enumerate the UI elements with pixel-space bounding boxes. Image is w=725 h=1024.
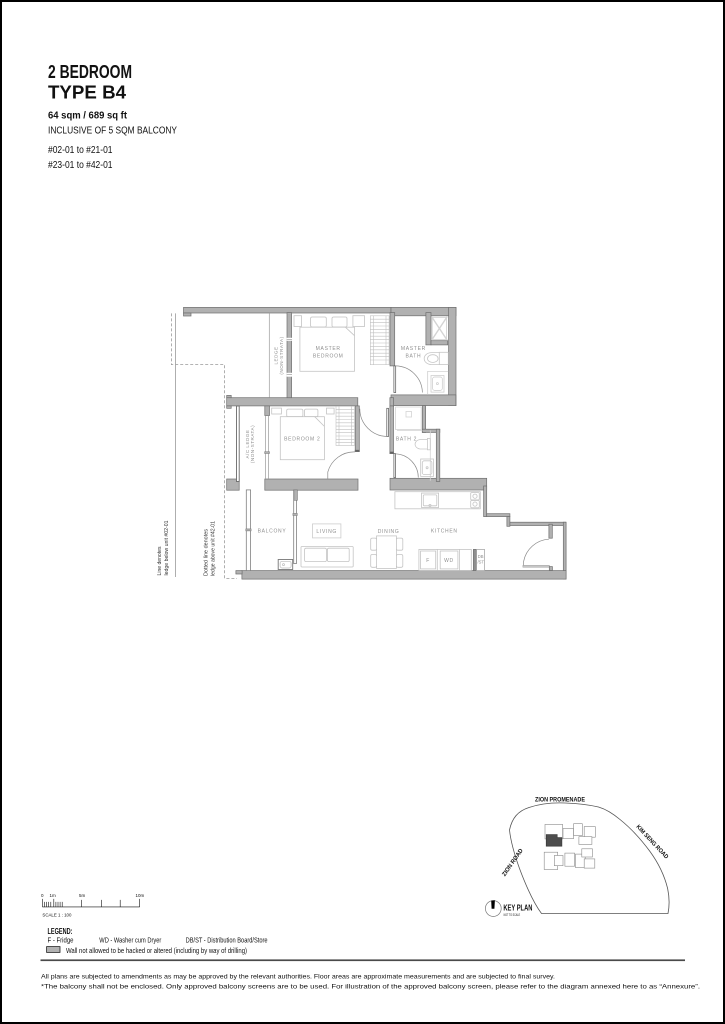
svg-text:64 sqm / 689 sq ft: 64 sqm / 689 sq ft [48, 111, 128, 122]
svg-text:BEDROOM: BEDROOM [313, 354, 344, 360]
svg-text:SCALE 1 : 100: SCALE 1 : 100 [42, 913, 71, 919]
svg-text:*The balcony shall not be encl: *The balcony shall not be enclosed. Only… [41, 983, 700, 990]
svg-text:DB/ST - Distribution Board/Sto: DB/ST - Distribution Board/Store [186, 938, 268, 945]
svg-text:LEDGE: LEDGE [274, 346, 279, 364]
svg-text:KEY PLAN: KEY PLAN [503, 903, 532, 913]
svg-text:DB: DB [478, 554, 484, 559]
svg-text:INCLUSIVE OF 5 SQM BALCONY: INCLUSIVE OF 5 SQM BALCONY [48, 126, 177, 137]
svg-text:MASTER: MASTER [401, 346, 426, 352]
svg-text:(NON-STRATA): (NON-STRATA) [279, 336, 284, 374]
svg-text:/ST: /ST [477, 560, 484, 565]
svg-text:BATH 2: BATH 2 [396, 436, 417, 442]
svg-text:ledge above unit #42-01: ledge above unit #42-01 [211, 521, 217, 576]
svg-text:MASTER: MASTER [316, 346, 341, 352]
svg-text:ZION PROMENADE: ZION PROMENADE [535, 798, 585, 804]
svg-text:5m: 5m [79, 893, 86, 898]
svg-text:DINING: DINING [378, 529, 400, 535]
svg-text:F - Fridge: F - Fridge [48, 938, 74, 945]
svg-text:#02-01 to #21-01: #02-01 to #21-01 [48, 144, 113, 156]
svg-text:F: F [426, 558, 430, 564]
svg-text:0: 0 [41, 893, 44, 898]
svg-text:1m: 1m [50, 893, 57, 898]
svg-text:2 BEDROOM: 2 BEDROOM [48, 62, 132, 82]
svg-text:Wall not allowed to be hacked: Wall not allowed to be hacked or altered… [66, 948, 247, 955]
svg-text:LIVING: LIVING [316, 529, 337, 535]
svg-text:NOT TO SCALE: NOT TO SCALE [504, 913, 521, 917]
svg-text:BALCONY: BALCONY [258, 529, 287, 535]
svg-text:WD: WD [444, 558, 454, 564]
svg-text:Line denotes: Line denotes [157, 546, 163, 576]
svg-text:Dotted line denotes: Dotted line denotes [204, 528, 210, 576]
svg-text:ledge below unit #02-01: ledge below unit #02-01 [164, 520, 170, 575]
svg-text:A/C LEDGE: A/C LEDGE [245, 429, 250, 458]
svg-text:BEDROOM 2: BEDROOM 2 [284, 436, 320, 442]
svg-text:WD - Washer cum Dryer: WD - Washer cum Dryer [99, 938, 162, 945]
svg-text:TYPE B4: TYPE B4 [48, 83, 126, 103]
svg-text:#23-01 to #42-01: #23-01 to #42-01 [48, 159, 113, 171]
svg-text:KITCHEN: KITCHEN [431, 529, 458, 535]
svg-text:KIM SENG ROAD: KIM SENG ROAD [635, 824, 670, 861]
svg-text:LEGEND:: LEGEND: [48, 927, 73, 936]
svg-text:(NON-STRATA): (NON-STRATA) [250, 425, 255, 463]
svg-text:BATH: BATH [406, 354, 422, 360]
svg-text:All plans are subjected to ame: All plans are subjected to amendments as… [41, 974, 555, 981]
svg-text:10m: 10m [136, 893, 145, 898]
